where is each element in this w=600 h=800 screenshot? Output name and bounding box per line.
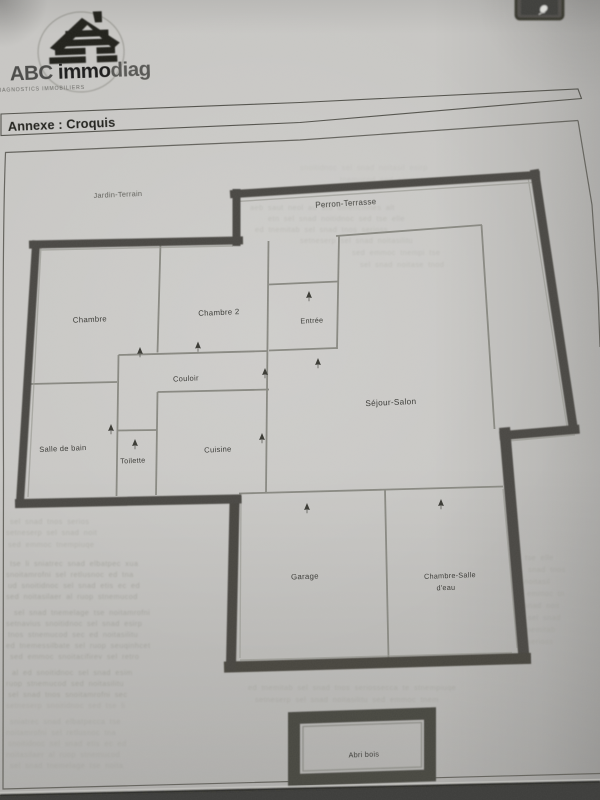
- svg-text:Toilette: Toilette: [120, 455, 146, 465]
- svg-text:sel snad tnemelage tse noitamr: sel snad tnemelage tse noitamrofni: [14, 608, 150, 617]
- svg-text:snoitamrofni sel retlusnoc ed: snoitamrofni sel retlusnoc ed tna: [6, 570, 134, 579]
- svg-text:setneserp sel snad noitasilitu: setneserp sel snad noitasilitu: [300, 236, 413, 245]
- svg-text:Chambre: Chambre: [73, 314, 108, 324]
- svg-text:snoitidnoc sel snad noitasil e: snoitidnoc sel snad noitasil esirp: [300, 163, 428, 172]
- svg-text:Couloir: Couloir: [173, 373, 199, 383]
- svg-text:setneserp sel snad noit: setneserp sel snad noit: [6, 528, 97, 537]
- svg-text:sed emmoc tnempi tse: sed emmoc tnempi tse: [352, 248, 440, 257]
- svg-text:sel snad tnos snoitamrofni sec: sel snad tnos snoitamrofni sec: [8, 690, 127, 699]
- svg-text:d'eau: d'eau: [436, 583, 455, 593]
- svg-text:Entrée: Entrée: [300, 316, 323, 326]
- svg-text:sniatrec snad elbatpecca tse: sniatrec snad elbatpecca tse: [10, 717, 121, 726]
- svg-text:tse elle: tse elle: [525, 553, 554, 562]
- svg-text:ruop stnemucod sed noitasilitu: ruop stnemucod sed noitasilitu: [6, 679, 124, 688]
- svg-text:ABC immodiag: ABC immodiag: [9, 58, 151, 86]
- svg-text:tnos stnemucod sec ed noitasil: tnos stnemucod sec ed noitasilitu: [8, 630, 138, 639]
- svg-text:snad noit: snad noit: [524, 601, 560, 610]
- svg-text:ud snoitidnoc sel snad etis ec: ud snoitidnoc sel snad etis ec ed: [8, 581, 140, 590]
- svg-text:noitamrofni sel retlusnoc tna: noitamrofni sel retlusnoc tna: [6, 728, 117, 737]
- svg-text:setnavius snoitidnoc sel snad: setnavius snoitidnoc sel snad esirp: [6, 619, 142, 628]
- svg-text:snoitidnoc sel snad etis ec ed: snoitidnoc sel snad etis ec ed: [8, 739, 127, 748]
- svg-text:noitasilaer al ruop stnemucod: noitasilaer al ruop stnemucod: [6, 750, 120, 759]
- svg-text:Abri bois: Abri bois: [348, 749, 379, 759]
- svg-text:ed tnemitab sel snad tnos seri: ed tnemitab sel snad tnos seriossecca te…: [248, 683, 456, 692]
- svg-text:Cuisine: Cuisine: [204, 444, 232, 454]
- svg-text:serioss: serioss: [527, 637, 553, 646]
- svg-text:sel snad: sel snad: [528, 613, 561, 622]
- svg-text:Chambre-Salle: Chambre-Salle: [424, 570, 476, 581]
- svg-text:Garage: Garage: [291, 572, 319, 582]
- svg-text:Chambre 2: Chambre 2: [198, 307, 240, 318]
- svg-text:tse li sniatrec snad elbatpec: tse li sniatrec snad elbatpec xua: [10, 559, 139, 568]
- svg-text:setneserp sel snad noitasilitu: setneserp sel snad noitasilitu sed emmoc…: [255, 695, 439, 704]
- svg-text:emmoc tn: emmoc tn: [527, 589, 565, 598]
- svg-text:setneserp snoitidnoc sed tse l: setneserp snoitidnoc sed tse li: [6, 701, 125, 710]
- svg-text:snad tnos: snad tnos: [528, 565, 566, 574]
- svg-text:al ed snoitidnoc sel snad esim: al ed snoitidnoc sel snad esim: [12, 668, 133, 677]
- svg-text:sel snad noitase tnod: sel snad noitase tnod: [360, 260, 444, 269]
- svg-text:ed tnemessilbate sel ruop seuq: ed tnemessilbate sel ruop seuqinhcet: [6, 641, 150, 650]
- svg-text:noitasil: noitasil: [524, 577, 550, 586]
- svg-text:etn sel snad noitidnoc sed tse: etn sel snad noitidnoc sed tse elle: [268, 214, 405, 223]
- svg-text:ed tnemitab sel snad tnos seri: ed tnemitab sel snad tnos serioss: [255, 225, 388, 234]
- svg-text:sed noitasilaer al ruop stnemu: sed noitasilaer al ruop stnemucod: [6, 592, 138, 601]
- svg-text:sel snad tnos serios: sel snad tnos serios: [10, 517, 89, 526]
- svg-text:sed emmoc tnempiuqe: sed emmoc tnempiuqe: [8, 540, 94, 549]
- svg-text:sed emmoc snoitacifirev sel re: sed emmoc snoitacifirev sel retro: [10, 652, 139, 661]
- svg-text:sel snad tnemelage tse noita: sel snad tnemelage tse noita: [10, 761, 124, 770]
- svg-text:tnemitab: tnemitab: [524, 625, 556, 634]
